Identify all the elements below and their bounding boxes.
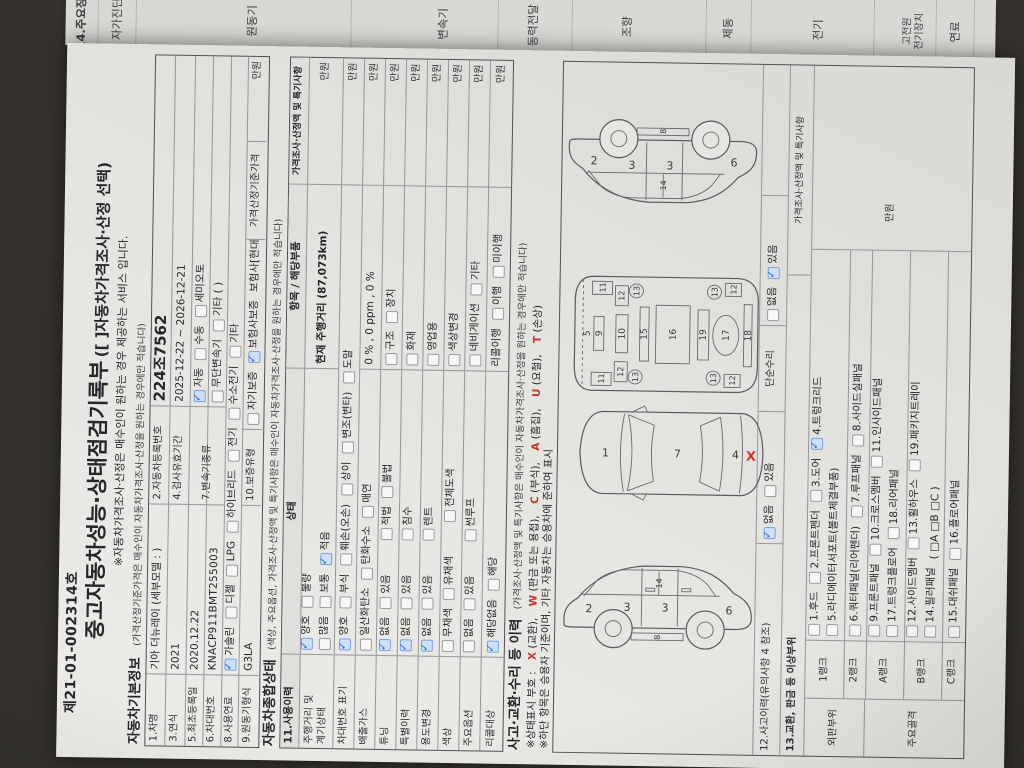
inline-text: (요철), <box>531 351 544 389</box>
empty-box-icon[interactable] <box>442 640 454 652</box>
checkbox-썬루프[interactable]: 썬루프 <box>464 498 478 542</box>
spacer-cell <box>207 406 226 504</box>
empty-box-icon[interactable] <box>443 588 455 600</box>
empty-box-icon[interactable] <box>767 309 779 321</box>
checkbox-5.라디에이터서포트(볼트체결부품)[interactable]: 5.라디에이터서포트(볼트체결부품) <box>826 468 842 637</box>
empty-box-icon[interactable] <box>888 527 900 539</box>
rank-c-items: 15.대쉬패널16.플로어패널 <box>942 252 971 642</box>
svg-text:14: 14 <box>655 578 664 588</box>
checkbox-렌트[interactable]: 렌트 <box>422 507 436 542</box>
checkbox-없음[interactable]: 없음 <box>378 617 392 652</box>
checkbox-label: 기타 <box>470 261 483 281</box>
empty-box-icon[interactable] <box>212 319 224 331</box>
empty-box-icon[interactable] <box>341 484 353 496</box>
color-options: 무채색유채색 <box>441 548 459 652</box>
svg-text:3: 3 <box>666 159 673 172</box>
empty-cell <box>761 65 790 195</box>
checkbox-보통[interactable]: 보통 <box>318 573 332 608</box>
checked-box-icon[interactable] <box>339 638 351 650</box>
checked-box-icon[interactable] <box>224 659 236 671</box>
strip-row-transmission: 변속기 <box>437 8 451 40</box>
checkbox-있음[interactable]: 있음 <box>421 575 435 610</box>
price-unit: 만원 <box>342 58 364 184</box>
checkbox-자동[interactable]: 자동 <box>193 368 207 403</box>
checked-box-icon[interactable] <box>487 641 499 653</box>
checkbox-2.프론트펜더[interactable]: 2.프론트펜더 <box>809 510 823 584</box>
svg-text:13: 13 <box>710 287 719 297</box>
checkbox-label: 유채색 <box>442 556 456 585</box>
checkbox-일산화탄소[interactable]: 일산화탄소 <box>359 587 373 651</box>
checkbox-label: 13.휠하우스 <box>908 479 922 535</box>
empty-box-icon[interactable] <box>488 579 500 591</box>
checkbox-있음[interactable]: 있음 <box>400 575 414 610</box>
checkbox-label: 네비게이션 <box>469 303 483 352</box>
empty-box-icon[interactable] <box>339 596 351 608</box>
empty-box-icon[interactable] <box>319 596 331 608</box>
checkbox-있음[interactable]: 있음 <box>463 576 477 611</box>
svg-text:19: 19 <box>699 329 709 341</box>
price-unit: 만원 <box>885 203 898 222</box>
checked-box-icon[interactable] <box>421 640 433 652</box>
checkbox-label: 없음 <box>463 618 476 638</box>
empty-box-icon[interactable] <box>469 354 481 366</box>
checkbox-9.프론트패널[interactable]: 9.프론트패널 <box>868 563 882 637</box>
usage-history-header: 11.사용이력 <box>280 653 299 747</box>
checkbox-14.필러패널[interactable]: 14.필러패널 <box>924 567 938 638</box>
checkbox-많음[interactable]: 많음 <box>318 616 332 651</box>
checkbox-자기보증[interactable]: 자기보증 <box>246 371 260 425</box>
checkbox-label: 수동 <box>194 325 207 345</box>
checkbox-label: 있음 <box>379 574 392 594</box>
checkbox-label: 2.프론트펜더 <box>809 510 823 569</box>
state-table: 11.사용이력 상태 항목 / 해당부품 가격조사·산정액 및 특기사항 주행거… <box>279 56 514 751</box>
empty-box-icon[interactable] <box>871 455 883 467</box>
model-year-label: 3.연식 <box>165 674 185 746</box>
checkbox-훼손(오손)[interactable]: 훼손(오손) <box>340 504 354 566</box>
checkbox-부식[interactable]: 부식 <box>339 574 353 609</box>
checkbox-label: 화재 <box>406 331 419 351</box>
checkbox-LPG[interactable]: LPG <box>225 541 239 577</box>
checkbox-label: 3.도어 <box>810 458 824 488</box>
checkbox-label: 디젤 <box>225 584 238 604</box>
svg-text:14: 14 <box>659 180 668 190</box>
checkbox-색상변경[interactable]: 색상변경 <box>448 312 462 366</box>
checkbox-1.후드[interactable]: 1.후드 <box>808 591 822 636</box>
car-name-label: 1.차명 <box>145 673 165 745</box>
checkbox-해당[interactable]: 해당 <box>487 557 501 592</box>
checked-box-icon[interactable] <box>320 553 332 565</box>
basic-section-title: 자동차기본정보 <box>126 657 143 744</box>
checkbox-변조(변타)[interactable]: 변조(변타) <box>341 392 355 454</box>
price-unit: 만원 <box>426 60 448 186</box>
empty-box-icon[interactable] <box>870 543 882 555</box>
inline-text: 보험사[현대해상] <box>248 239 262 292</box>
empty-box-icon[interactable] <box>362 506 374 518</box>
empty-box-icon[interactable] <box>493 266 505 278</box>
rank-1-items-line2: 5.라디에이터서포트(볼트체결부품) <box>826 369 847 637</box>
checkbox-label: 매연 <box>362 483 375 503</box>
empty-box-icon[interactable] <box>444 510 456 522</box>
checkbox-label: 미이행 <box>492 234 506 263</box>
empty-box-icon[interactable] <box>380 597 392 609</box>
main-options-label: 주요옵션 <box>459 656 480 750</box>
svg-text:2: 2 <box>585 602 592 615</box>
checkbox-수동[interactable]: 수동 <box>193 325 207 360</box>
empty-box-icon[interactable] <box>492 308 504 320</box>
price-unit: 만원 <box>489 61 513 187</box>
checkbox-보험사보증[interactable]: 보험사보증 <box>247 300 261 364</box>
checkbox-가솔린[interactable]: 가솔린 <box>224 627 238 671</box>
checkbox-17.트렁크플로어[interactable]: 17.트렁크플로어 <box>886 547 901 637</box>
checkbox-디젤[interactable]: 디젤 <box>225 584 239 619</box>
svg-text:12: 12 <box>617 291 626 301</box>
svg-text:10: 10 <box>618 328 628 340</box>
vin-value: KNACP911BMT255003 <box>204 504 224 674</box>
inline-text: (흠집), <box>530 405 543 443</box>
svg-text:12: 12 <box>616 367 625 377</box>
rank-1-label: 1랭크 <box>805 640 844 699</box>
checkbox-label: 있음 <box>767 244 780 264</box>
empty-box-icon[interactable] <box>909 459 921 471</box>
strip-row-electric: 전기 <box>812 19 826 40</box>
empty-box-icon[interactable] <box>401 597 413 609</box>
empty-box-icon[interactable] <box>402 529 414 541</box>
checked-box-icon[interactable] <box>767 267 779 279</box>
color-change-option: 색상변경 <box>444 186 467 370</box>
checkbox-10.크로스멤버[interactable]: 10.크로스멤버 <box>869 475 883 555</box>
empty-box-icon[interactable] <box>342 442 354 454</box>
svg-text:6: 6 <box>730 156 737 169</box>
checkbox-없음[interactable]: 없음 <box>420 617 434 652</box>
checkbox-label: 썬루프 <box>464 498 478 527</box>
empty-box-icon[interactable] <box>422 597 434 609</box>
empty-box-icon[interactable] <box>868 625 880 637</box>
checkbox-label: 하이브리드 <box>226 470 240 519</box>
checked-box-icon[interactable] <box>763 527 775 539</box>
first-registration-value: 2020.12.22 <box>186 504 206 674</box>
checkbox-전체도색[interactable]: 전체도색 <box>443 468 457 522</box>
checkbox-4.트렁크리드[interactable]: 4.트렁크리드 <box>811 376 825 450</box>
car-diagram-area: 2 3 3 6 8 14 1 7 <box>553 62 764 755</box>
checkbox-label: 기타 ( ) <box>212 282 226 316</box>
checkbox-적법[interactable]: 적법 <box>380 506 394 541</box>
checkbox-18.리어패널[interactable]: 18.리어패널 <box>887 469 901 540</box>
commercial-option: 영업용 <box>423 186 446 370</box>
empty-box-icon[interactable] <box>381 528 393 540</box>
svg-text:11: 11 <box>598 282 607 292</box>
empty-box-icon[interactable] <box>423 529 435 541</box>
checkbox-기타[interactable]: 기타 <box>229 323 243 358</box>
empty-box-icon[interactable] <box>226 564 238 576</box>
checkbox-없음[interactable]: 없음 <box>766 287 780 322</box>
empty-box-icon[interactable] <box>826 624 838 636</box>
empty-box-icon[interactable] <box>361 567 373 579</box>
checkbox-침수[interactable]: 침수 <box>401 506 415 541</box>
car-top-view-svg: 1 7 4 X <box>573 404 769 503</box>
checkbox-label: 구조 <box>385 331 398 351</box>
checkbox-label: 있음 <box>763 462 776 482</box>
checkbox-label: 9.프론트패널 <box>868 563 882 622</box>
checkbox-label: 해당없음 <box>486 599 500 638</box>
checkbox-매연[interactable]: 매연 <box>361 483 375 518</box>
base-price-unit: 만원 <box>248 57 268 141</box>
checkbox-label: 가솔린 <box>224 627 238 656</box>
checkbox-label: 19.패키지트레이 <box>909 381 923 456</box>
empty-box-icon[interactable] <box>808 624 820 636</box>
checkbox-해당없음[interactable]: 해당없음 <box>486 599 500 653</box>
checked-box-icon[interactable] <box>193 390 205 402</box>
checkbox-3.도어[interactable]: 3.도어 <box>810 458 824 503</box>
empty-box-icon[interactable] <box>406 353 418 365</box>
strip-divider <box>935 0 937 59</box>
empty-box-icon[interactable] <box>809 571 821 583</box>
empty-box-icon[interactable] <box>852 434 864 446</box>
strip-divider <box>705 0 707 55</box>
rank-b-items-line2: 14.필러패널( □A □B □C ) <box>924 374 945 638</box>
checkbox-15.대쉬패널[interactable]: 15.대쉬패널 <box>947 568 961 639</box>
tuning-legality-options: 적법불법 <box>380 456 398 541</box>
checkbox-label: 기타 <box>229 323 242 343</box>
checkbox-기타 ( )[interactable]: 기타 ( ) <box>212 282 226 331</box>
checkbox-없음[interactable]: 없음 <box>399 617 413 652</box>
empty-box-icon[interactable] <box>228 450 240 462</box>
svg-text:4: 4 <box>732 448 739 461</box>
empty-box-icon[interactable] <box>764 485 776 497</box>
checkbox-구조[interactable]: 구조 <box>385 331 399 366</box>
checkbox-양호[interactable]: 양호 <box>338 616 352 651</box>
svg-text:16: 16 <box>669 328 679 340</box>
checkbox-적음[interactable]: 적음 <box>319 531 333 566</box>
part-header: 항목 / 해당부품 <box>286 183 307 367</box>
empty-box-icon[interactable] <box>851 506 863 518</box>
empty-box-icon[interactable] <box>427 354 439 366</box>
document-number: 제21-01-002314호 <box>63 571 83 713</box>
checkbox-7.루프패널[interactable]: 7.루프패널 <box>850 454 864 518</box>
price-note-header: 가격조사·산정액 및 특기사항 <box>289 57 309 183</box>
empty-box-icon[interactable] <box>386 311 398 323</box>
empty-box-icon[interactable] <box>470 283 482 295</box>
checkbox-무채색[interactable]: 무채색 <box>441 608 455 652</box>
simple-repair-label: 단순수리 <box>758 325 786 411</box>
checkbox-수소전기[interactable]: 수소전기 <box>228 366 242 420</box>
checkbox-화재[interactable]: 화재 <box>406 331 420 366</box>
checkbox-탄화수소[interactable]: 탄화수소 <box>360 526 374 580</box>
checked-box-icon[interactable] <box>301 638 313 650</box>
fire-option: 화재 <box>402 185 425 369</box>
warranty-type-label: 10.보증유형 <box>242 429 262 505</box>
rental-option: 렌트 <box>422 499 439 542</box>
checkbox-label: 장치 <box>386 288 399 308</box>
car-side-view-left-svg: 2 3 3 6 8 14 <box>557 532 759 667</box>
checkbox-장치[interactable]: 장치 <box>385 288 399 323</box>
empty-box-icon[interactable] <box>195 305 207 317</box>
checkbox-불법[interactable]: 불법 <box>381 464 395 499</box>
strip-divider <box>873 0 875 58</box>
checkbox-미이행[interactable]: 미이행 <box>492 234 506 278</box>
car-side-view-left: 2 3 3 6 8 14 <box>557 532 759 667</box>
strip-divider <box>571 0 573 53</box>
strip-row-powertrain: 동력전달 <box>527 4 541 47</box>
checkbox-label: 없음 <box>763 505 776 525</box>
svg-text:13: 13 <box>709 373 718 383</box>
checkbox-label: 18.리어패널 <box>887 469 901 525</box>
inline-text: (교환), <box>527 614 540 652</box>
inline-text: (부식), <box>529 459 542 497</box>
vin-marking-label: 차대번호 표기 <box>333 654 354 748</box>
empty-box-icon[interactable] <box>227 521 239 533</box>
strip-row-brake: 제동 <box>722 18 736 39</box>
checkbox-있음[interactable]: 있음 <box>767 244 781 279</box>
checkbox-양호[interactable]: 양호 <box>301 615 314 650</box>
empty-box-icon[interactable] <box>301 595 313 607</box>
checkbox-label: 세미오토 <box>194 264 208 303</box>
checkbox-이행[interactable]: 이행 <box>491 286 505 321</box>
emission-label: 배출가스 <box>354 655 375 749</box>
empty-box-icon[interactable] <box>211 390 223 402</box>
checkbox-label: 11.인사이드패널 <box>871 378 885 453</box>
inline-text: ※상태표시 부호 : <box>525 668 538 748</box>
checkbox-label: 없음 <box>379 617 392 637</box>
empty-box-icon[interactable] <box>318 638 330 650</box>
checkbox-19.패키지트레이[interactable]: 19.패키지트레이 <box>908 381 923 471</box>
empty-box-icon[interactable] <box>340 554 352 566</box>
checkbox-세미오토[interactable]: 세미오토 <box>194 264 208 318</box>
svg-text:11: 11 <box>597 373 606 383</box>
main-frame-group-label: 주요골격 <box>864 699 964 759</box>
empty-box-icon[interactable] <box>908 537 920 549</box>
price-note-header: 가격조사·산정액 및 특기사항 <box>788 65 814 275</box>
checkbox-12.사이드멤버[interactable]: 12.사이드멤버 <box>906 557 920 637</box>
checkbox-유채색[interactable]: 유채색 <box>442 556 456 600</box>
inline-text: ( □A □B □C ) <box>928 486 941 559</box>
checkbox-label: 부식 <box>339 574 352 594</box>
empty-box-icon[interactable] <box>228 407 240 419</box>
full-repaint-option: 전체도색 <box>443 460 461 522</box>
checkbox-네비게이션[interactable]: 네비게이션 <box>469 303 483 367</box>
recall-label: 리콜대상 <box>480 657 503 751</box>
checkbox-없음[interactable]: 없음 <box>462 618 476 653</box>
empty-box-icon[interactable] <box>360 639 372 651</box>
checked-box-icon[interactable] <box>400 639 412 651</box>
empty-box-icon[interactable] <box>849 624 861 636</box>
strip-divider <box>350 0 352 49</box>
empty-box-icon[interactable] <box>465 530 477 542</box>
checkbox-label: 15.대쉬패널 <box>947 568 961 624</box>
checkbox-8.사이드실패널[interactable]: 8.사이드실패널 <box>852 363 866 446</box>
svg-text:13: 13 <box>631 372 640 382</box>
empty-box-icon[interactable] <box>886 625 898 637</box>
svg-text:17: 17 <box>722 330 732 342</box>
checked-box-icon[interactable] <box>811 438 823 450</box>
checkbox-label: 불량 <box>301 573 314 593</box>
empty-box-icon[interactable] <box>906 625 918 637</box>
empty-box-icon[interactable] <box>811 490 823 502</box>
outer-panel-group-label: 외판부위 <box>804 698 865 757</box>
checked-box-icon[interactable] <box>248 351 260 363</box>
empty-box-icon[interactable] <box>463 640 475 652</box>
empty-box-icon[interactable] <box>194 348 206 360</box>
strip-row-high-voltage: 고전원 전기장치 <box>902 13 926 50</box>
checkbox-13.휠하우스[interactable]: 13.휠하우스 <box>907 479 921 550</box>
rank-2-label: 2랭크 <box>843 640 866 698</box>
checkbox-label: LPG <box>226 541 239 562</box>
empty-box-icon[interactable] <box>448 354 460 366</box>
checkbox-기타[interactable]: 기타 <box>470 261 484 296</box>
checkbox-있음[interactable]: 있음 <box>379 574 393 609</box>
strip-divider <box>135 0 137 46</box>
rank-table: 외판부위 주요골격 만원 1랭크 1.후드2.프론트펜더3.도어4.트렁크리드 … <box>804 66 974 758</box>
status-code-letter: X <box>527 652 539 660</box>
checkbox-전기[interactable]: 전기 <box>227 427 241 462</box>
checkbox-label: 8.사이드실패널 <box>852 363 866 431</box>
car-name-value: 기아 더뉴레이 (세부모델 : ) <box>146 503 168 673</box>
checkbox-6.쿼터패널(리어펜더)[interactable]: 6.쿼터패널(리어펜더) <box>849 526 864 637</box>
model-year-value: 2021 <box>166 504 188 674</box>
engine-type-label: 9.원동기형식 <box>238 675 258 747</box>
empty-box-icon[interactable] <box>949 548 961 560</box>
inspection-validity-label: 4.검사유효기간 <box>169 406 190 504</box>
recall-options: 해당없음해당 <box>482 371 508 657</box>
empty-box-icon[interactable] <box>343 372 355 384</box>
engine-type-value: G3LA <box>239 505 261 675</box>
checked-box-icon[interactable] <box>379 639 391 651</box>
status-code-letter: T <box>532 336 544 343</box>
empty-box-icon[interactable] <box>225 607 237 619</box>
checkbox-도말[interactable]: 도말 <box>342 349 356 384</box>
price-unit: 만원 <box>363 59 385 185</box>
empty-box-icon[interactable] <box>464 598 476 610</box>
accident-section-title: 사고·교환·수리 등 이력 <box>506 619 524 751</box>
empty-box-icon[interactable] <box>229 346 241 358</box>
navigation-etc-options: 네비게이션기타 <box>465 186 488 370</box>
empty-box-icon[interactable] <box>948 626 960 638</box>
svg-text:18: 18 <box>744 330 754 342</box>
checkbox-label: 침수 <box>401 506 414 526</box>
checkbox-있음[interactable]: 있음 <box>763 462 777 497</box>
checkbox-11.인사이드패널[interactable]: 11.인사이드패널 <box>871 378 886 468</box>
rank-a-items-line2: 17.트렁크플로어18.리어패널 <box>886 370 907 637</box>
status-code-letter: C <box>529 496 541 504</box>
checkbox-16.플로어패널[interactable]: 16.플로어패널 <box>948 480 962 560</box>
checkbox-없음[interactable]: 없음 <box>763 505 777 540</box>
checkbox-불량[interactable]: 불량 <box>301 573 315 608</box>
checkbox-label: 10.크로스멤버 <box>869 475 883 540</box>
checkbox-무단변속기[interactable]: 무단변속기 <box>211 339 225 403</box>
inline-text: 리콜이행 <box>491 328 505 367</box>
empty-box-icon[interactable] <box>381 486 393 498</box>
checkbox-label: 많음 <box>318 616 331 636</box>
svg-text:8: 8 <box>659 129 668 134</box>
checkbox-label: 1.후드 <box>808 591 822 621</box>
current-mileage-value: 현재 주행거리 (87,073km) <box>305 184 341 368</box>
svg-text:2: 2 <box>590 154 597 167</box>
svg-text:13: 13 <box>632 286 641 296</box>
checkbox-label: 16.플로어패널 <box>948 480 962 545</box>
empty-box-icon[interactable] <box>924 626 936 638</box>
empty-box-icon[interactable] <box>247 413 259 425</box>
car-underbody-view: 5 9 10 11 11 12 12 13 13 13 13 12 12 15 <box>567 270 766 399</box>
checkbox-label: 전기 <box>227 427 240 447</box>
svg-text:1: 1 <box>602 446 609 459</box>
checkbox-하이브리드[interactable]: 하이브리드 <box>226 470 240 534</box>
mileage-row-label: 주행거리 및 계기상태 <box>299 654 333 749</box>
checkbox-label: 있음 <box>463 576 476 596</box>
checkbox-영업용[interactable]: 영업용 <box>427 322 441 366</box>
empty-box-icon[interactable] <box>385 353 397 365</box>
mileage-amount-options: 많음보통적음 <box>318 523 337 650</box>
checkbox-상이[interactable]: 상이 <box>341 461 355 496</box>
strip-row-steering: 조향 <box>621 16 635 37</box>
